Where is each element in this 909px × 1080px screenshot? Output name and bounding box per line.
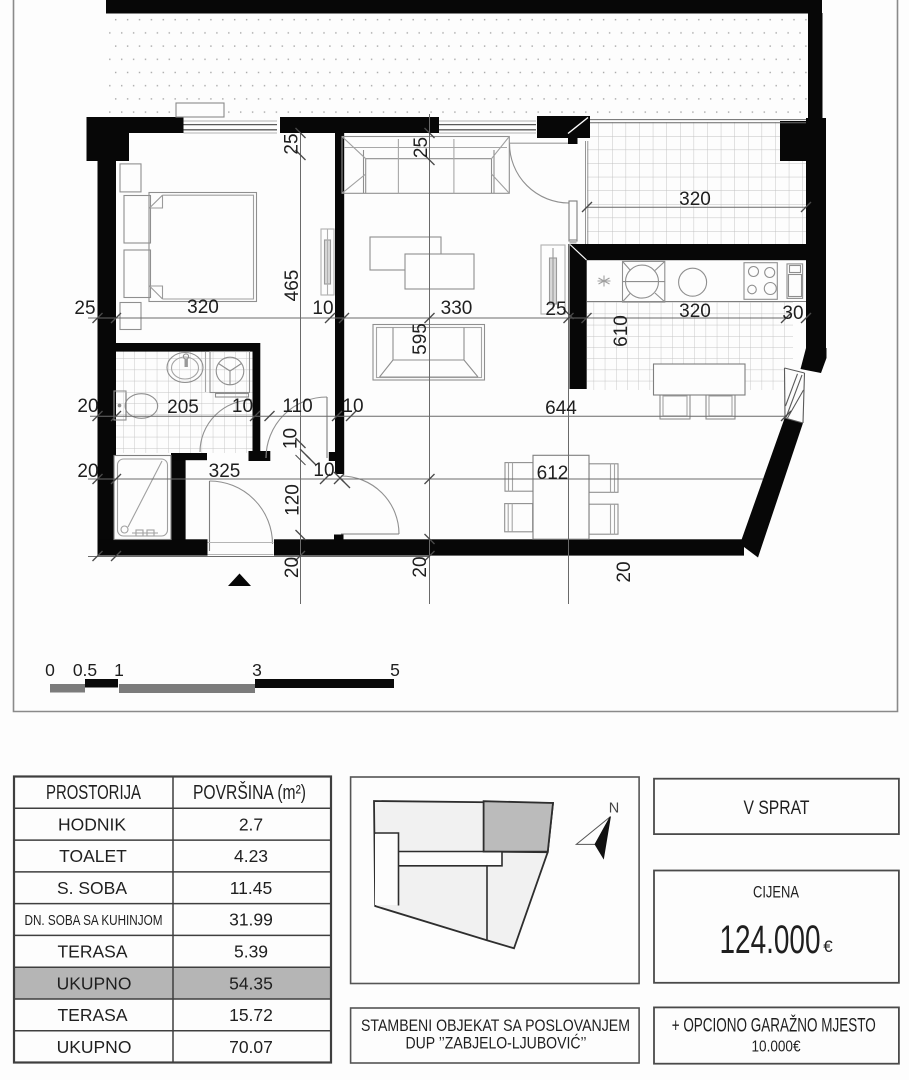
svg-text:644: 644 — [545, 398, 577, 419]
svg-text:124.000: 124.000 — [720, 918, 821, 962]
svg-text:10: 10 — [313, 460, 334, 481]
svg-text:UKUPNO: UKUPNO — [57, 1037, 132, 1057]
svg-text:120: 120 — [283, 484, 304, 516]
svg-text:CIJENA: CIJENA — [753, 883, 799, 902]
svg-text:20: 20 — [614, 561, 635, 582]
svg-text:20: 20 — [77, 396, 98, 417]
svg-text:70.07: 70.07 — [229, 1037, 273, 1057]
svg-text:3: 3 — [252, 660, 262, 680]
svg-text:54.35: 54.35 — [229, 973, 273, 993]
svg-text:320: 320 — [679, 301, 711, 322]
svg-text:10: 10 — [312, 298, 333, 319]
svg-text:205: 205 — [167, 397, 199, 418]
svg-text:S. SOBA: S. SOBA — [57, 878, 127, 898]
svg-text:€: € — [823, 937, 833, 956]
svg-text:595: 595 — [410, 323, 431, 355]
svg-text:10.000€: 10.000€ — [752, 1039, 801, 1056]
svg-text:612: 612 — [537, 463, 569, 484]
svg-text:610: 610 — [611, 315, 632, 347]
svg-text:20: 20 — [282, 557, 303, 578]
svg-text:TOALET: TOALET — [59, 846, 127, 866]
svg-text:10: 10 — [342, 396, 363, 417]
svg-text:STAMBENI OBJEKAT SA POSLOVANJE: STAMBENI OBJEKAT SA POSLOVANJEM — [361, 1016, 630, 1035]
svg-text:20: 20 — [410, 556, 431, 577]
svg-text:465: 465 — [282, 270, 303, 302]
svg-text:1: 1 — [114, 660, 124, 680]
svg-text:DN. SOBA SA KUHINJOM: DN. SOBA SA KUHINJOM — [25, 912, 163, 929]
svg-text:2.7: 2.7 — [239, 814, 263, 834]
svg-text:4.23: 4.23 — [234, 846, 268, 866]
svg-text:+ OPCIONO GARAŽNO MJESTO: + OPCIONO GARAŽNO MJESTO — [672, 1015, 876, 1037]
svg-text:DUP ’’ZABJELO-LJUBOVIĆ’’: DUP ’’ZABJELO-LJUBOVIĆ’’ — [406, 1034, 587, 1053]
svg-text:HODNIK: HODNIK — [58, 814, 126, 834]
svg-text:10: 10 — [232, 396, 253, 417]
svg-text:0.5: 0.5 — [73, 660, 97, 680]
svg-text:UKUPNO: UKUPNO — [57, 973, 132, 993]
svg-text:V SPRAT: V SPRAT — [744, 798, 810, 819]
svg-text:15.72: 15.72 — [229, 1005, 273, 1025]
svg-text:TERASA: TERASA — [57, 942, 127, 962]
svg-text:31.99: 31.99 — [229, 910, 273, 930]
svg-text:25: 25 — [74, 298, 95, 319]
svg-text:0: 0 — [45, 660, 55, 680]
svg-text:5.39: 5.39 — [234, 942, 268, 962]
svg-text:25: 25 — [545, 299, 566, 320]
svg-text:10: 10 — [281, 428, 302, 449]
svg-text:25: 25 — [411, 137, 432, 158]
svg-text:110: 110 — [282, 396, 312, 417]
svg-text:325: 325 — [209, 461, 241, 482]
svg-text:20: 20 — [77, 461, 98, 482]
svg-text:25: 25 — [282, 133, 303, 154]
svg-text:11.45: 11.45 — [230, 878, 273, 898]
svg-text:320: 320 — [679, 189, 711, 210]
svg-text:TERASA: TERASA — [57, 1005, 127, 1025]
svg-text:5: 5 — [390, 660, 400, 680]
svg-text:320: 320 — [187, 297, 219, 318]
svg-text:30: 30 — [782, 303, 803, 324]
svg-text:PROSTORIJA: PROSTORIJA — [46, 782, 141, 804]
svg-text:330: 330 — [441, 298, 473, 319]
svg-text:N: N — [609, 801, 619, 817]
svg-text:POVRŠINA (m²): POVRŠINA (m²) — [193, 781, 306, 804]
